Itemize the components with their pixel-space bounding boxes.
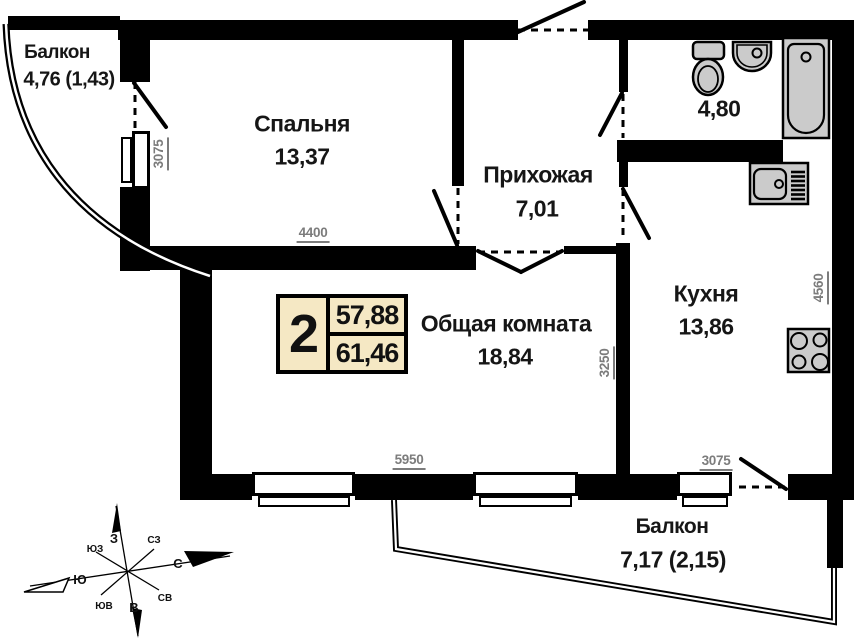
living-room-area: 18,84 — [477, 344, 532, 371]
compass-label-north: С — [173, 556, 183, 571]
living-door-leaf-left — [478, 251, 521, 272]
compass-south-arrow — [24, 578, 69, 592]
dimension-bedroom-window: 3075 — [151, 138, 169, 171]
compass-label-west: З — [110, 531, 118, 546]
badge-total-area: 61,46 — [330, 336, 404, 370]
washbasin — [733, 42, 771, 71]
balcony-top-name: Балкон — [24, 42, 90, 64]
dimension-living-width: 5950 — [393, 452, 426, 470]
dimension-bedroom-width: 4400 — [297, 225, 330, 243]
balcony-bottom-outline — [394, 500, 834, 622]
compass-label-east: В — [129, 600, 138, 615]
badge-room-count: 2 — [280, 298, 330, 370]
compass-north-arrow — [184, 551, 234, 567]
bedroom-name: Спальня — [254, 111, 350, 138]
compass-axis-nw-se — [101, 549, 154, 595]
balcony-bottom-name: Балкон — [636, 515, 709, 539]
bedroom-door-leaf — [434, 191, 457, 245]
compass-label-south: Ю — [73, 572, 86, 587]
apartment-badge: 2 57,88 61,46 — [276, 294, 408, 374]
compass-label-northwest: СЗ — [147, 535, 160, 546]
badge-living-area: 57,88 — [330, 298, 404, 336]
living-door-leaf-right — [521, 251, 562, 272]
balcony-top-area: 4,76 (1,43) — [23, 69, 114, 92]
bathroom-area: 4,80 — [698, 96, 741, 123]
entrance-door-leaf — [518, 2, 584, 32]
bedroom-area: 13,37 — [274, 144, 329, 171]
compass-label-southeast: ЮВ — [95, 601, 113, 612]
stove — [788, 329, 829, 372]
floor-plan: З С Ю В ЮЗ СЗ ЮВ СВ Балкон 4,76 (1,43) С… — [0, 0, 854, 640]
kitchen-name: Кухня — [674, 281, 739, 308]
hallway-area: 7,01 — [516, 196, 559, 223]
compass-label-northeast: СВ — [158, 593, 172, 604]
bathroom-door-leaf — [600, 93, 622, 135]
compass-west-arrow — [112, 503, 121, 533]
kitchen-balcony-door-leaf — [741, 459, 786, 489]
compass-axis-sw-ne — [96, 552, 159, 590]
bedroom-balcony-door-leaf — [134, 83, 166, 127]
dimension-kitchen-height: 4560 — [811, 272, 829, 305]
compass-label-southwest: ЮЗ — [87, 544, 104, 555]
compass-rose: З С Ю В ЮЗ СЗ ЮВ СВ — [24, 503, 234, 638]
balcony-bottom-area: 7,17 (2,15) — [620, 547, 726, 574]
kitchen-area: 13,86 — [678, 314, 733, 341]
toilet — [693, 42, 724, 95]
hallway-name: Прихожая — [483, 162, 592, 189]
living-room-name: Общая комната — [421, 311, 592, 338]
dimension-kitchen-width: 3075 — [700, 453, 733, 471]
dimension-living-kitchen-wall: 3250 — [597, 347, 615, 380]
bathtub — [783, 38, 829, 138]
kitchen-sink — [750, 163, 808, 204]
kitchen-door-leaf — [623, 189, 649, 238]
